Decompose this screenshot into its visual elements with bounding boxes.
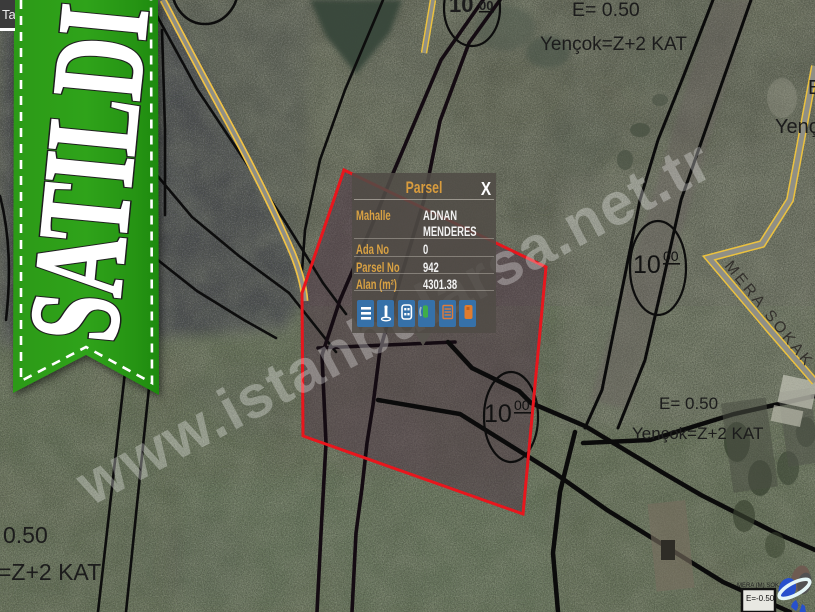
svg-text:0.50: 0.50 xyxy=(3,522,48,548)
svg-text:Yençok=Z+2 KAT: Yençok=Z+2 KAT xyxy=(540,34,687,55)
svg-text:E= 0.50: E= 0.50 xyxy=(659,394,718,413)
svg-text:00: 00 xyxy=(663,248,679,264)
svg-text:Yençok=Z+2 KAT: Yençok=Z+2 KAT xyxy=(632,424,763,443)
svg-text:10: 10 xyxy=(449,0,473,17)
svg-text:E=-0.50: E=-0.50 xyxy=(746,594,775,603)
svg-text:=Z+2 KAT: =Z+2 KAT xyxy=(0,559,101,585)
svg-text:10: 10 xyxy=(484,400,512,428)
svg-text:10: 10 xyxy=(633,251,661,279)
svg-text:E= 0.50: E= 0.50 xyxy=(572,0,640,21)
svg-text:Yenç: Yenç xyxy=(775,116,815,138)
svg-text:E: E xyxy=(808,77,815,99)
svg-text:00: 00 xyxy=(514,397,530,413)
